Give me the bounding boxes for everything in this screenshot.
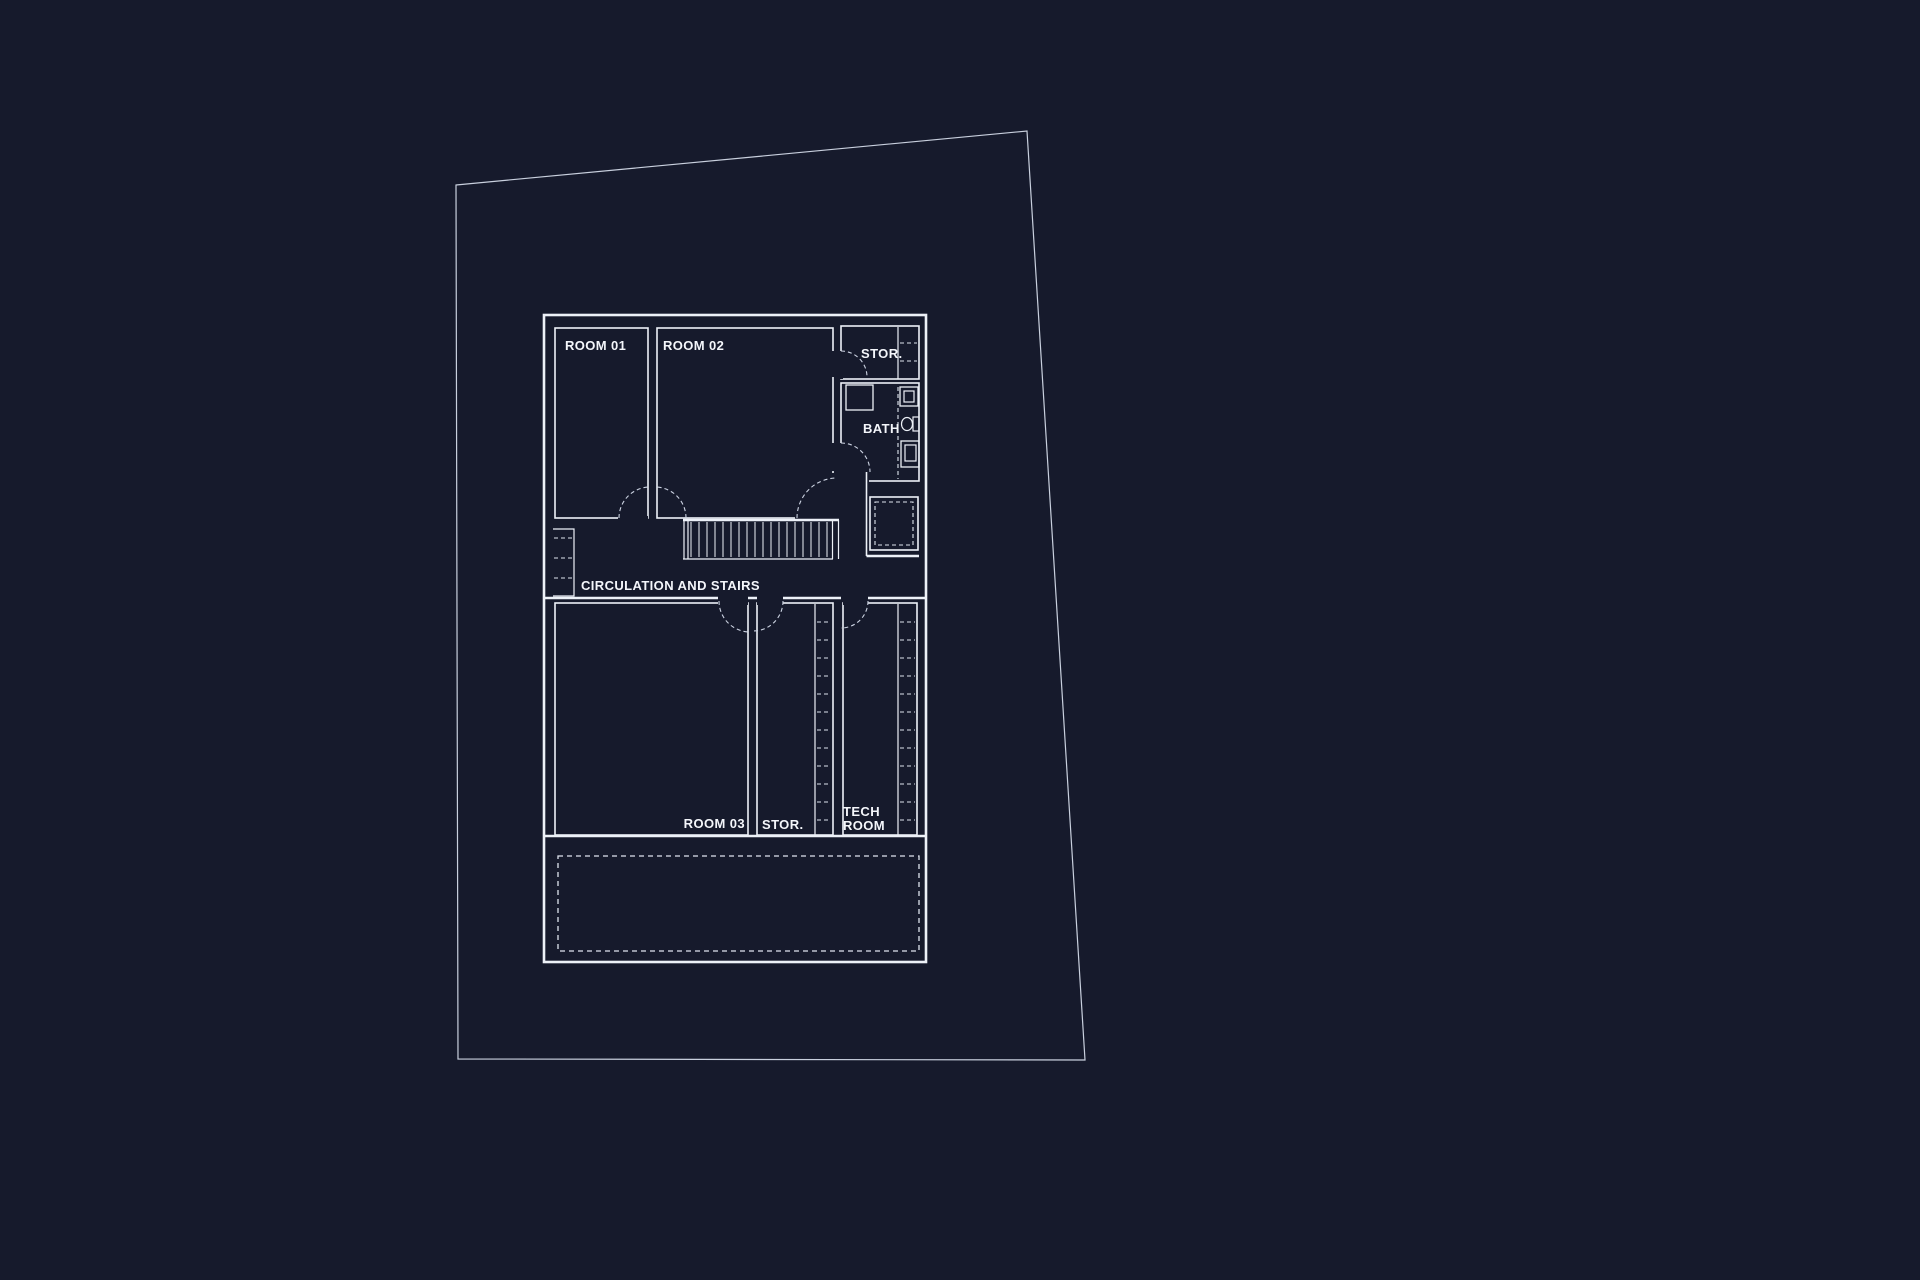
staircase	[683, 520, 833, 559]
room03-outline	[555, 603, 748, 835]
room03-label: ROOM 03	[684, 816, 745, 831]
door-openings	[618, 351, 869, 603]
wardrobe-shelf-lines	[554, 538, 573, 578]
tech-shelf-lines	[900, 622, 915, 820]
sink-basin	[904, 391, 914, 402]
stor-bottom-label: STOR.	[762, 817, 804, 832]
toilet-tank	[913, 417, 919, 431]
stair-treads	[691, 522, 827, 557]
door-arc-tech-room	[841, 601, 868, 628]
circulation-label: CIRCULATION AND STAIRS	[581, 578, 760, 593]
room01-label: ROOM 01	[565, 338, 626, 353]
door-arc-bath	[841, 443, 870, 472]
void-dashed-inset	[875, 502, 913, 545]
shower-tray	[905, 445, 916, 461]
floorplan-svg: ROOM 01 ROOM 02 STOR. BATH CIRCULATION A…	[0, 0, 1920, 1280]
shelving	[815, 327, 917, 835]
room-labels: ROOM 01 ROOM 02 STOR. BATH CIRCULATION A…	[565, 338, 903, 833]
stair-right-wall	[833, 520, 839, 559]
floor-plan: ROOM 01 ROOM 02 STOR. BATH CIRCULATION A…	[544, 315, 926, 962]
building-outer-wall	[544, 315, 926, 962]
sink-outline	[900, 387, 918, 406]
blueprint-canvas: ROOM 01 ROOM 02 STOR. BATH CIRCULATION A…	[0, 0, 1920, 1280]
corridor-wardrobe	[553, 529, 574, 596]
stor-top-shelf-lines	[900, 343, 917, 361]
stor-top-label: STOR.	[861, 346, 903, 361]
room02-outline	[657, 328, 833, 518]
stor-bottom-shelf-lines	[817, 622, 831, 820]
door-arc-room02-left	[655, 487, 686, 518]
door-arc-room03	[719, 601, 750, 632]
bath-label: BATH	[863, 421, 900, 436]
tech-room-outline	[843, 603, 917, 835]
bath-vanity	[846, 385, 873, 410]
tech-room-label-line1: TECH	[843, 804, 880, 819]
room01-outline	[555, 328, 648, 518]
terrace-dashed-outline	[558, 856, 919, 951]
site-boundary-outline	[456, 131, 1085, 1060]
interior-walls	[544, 472, 926, 836]
void-shaft	[870, 497, 918, 550]
toilet-bowl	[902, 418, 913, 431]
room02-label: ROOM 02	[663, 338, 724, 353]
tech-room-label-line2: ROOM	[843, 818, 885, 833]
stair-left-edge	[684, 520, 688, 559]
void-outline	[870, 497, 918, 550]
wardrobe-outline	[553, 529, 574, 596]
storage-bottom-outline	[757, 603, 833, 835]
door-arc-room01	[619, 487, 650, 518]
